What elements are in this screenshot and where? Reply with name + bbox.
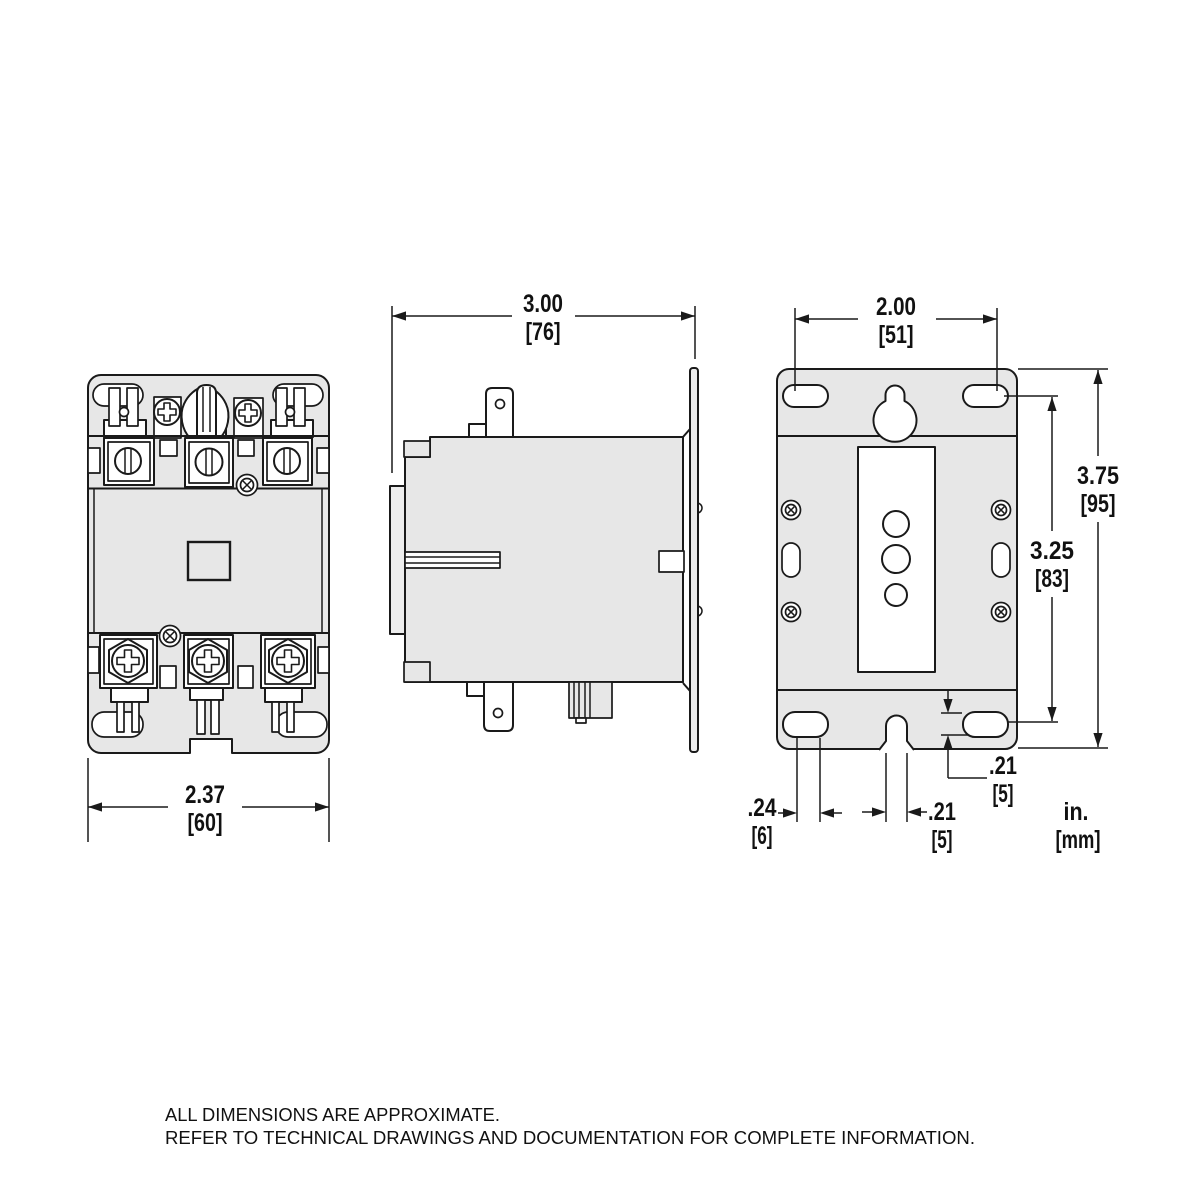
rivet-screw-icon — [782, 501, 801, 520]
dim-label-mm: [6] — [752, 822, 773, 850]
armature-slot — [405, 552, 500, 568]
assembly-screw-icon — [160, 626, 181, 647]
line-terminal-screw — [185, 438, 233, 487]
line-terminal-screw — [104, 438, 154, 485]
dim-label-mm: [60] — [188, 809, 223, 837]
cover-plate-edge — [390, 486, 405, 634]
phillips-screw-icon — [234, 398, 263, 438]
mounting-plate-edge — [690, 368, 698, 752]
hex-terminal-screw — [184, 635, 233, 688]
hex-terminal-screw — [100, 635, 157, 688]
dim-label-mm: [95] — [1081, 490, 1116, 518]
rivet-screw-icon — [782, 603, 801, 622]
terminal-hole-icon — [120, 408, 129, 417]
phillips-screw-icon — [154, 397, 181, 438]
technical-drawing-page: 2.37 [60] 3.00 [76] 2.00 [51] 3.75 [95] — [0, 0, 1200, 1200]
terminal-hole-icon — [494, 709, 503, 718]
mounting-slot — [276, 712, 327, 737]
rivet-screw-icon — [992, 603, 1011, 622]
dim-front-width: 2.37 [60] — [88, 758, 329, 842]
units-legend: in. [mm] — [1056, 798, 1101, 854]
dim-label: .21 — [928, 798, 956, 826]
terminal-hole-icon — [286, 408, 295, 417]
mounting-slot — [783, 712, 828, 737]
units-mm-label: [mm] — [1056, 826, 1101, 854]
dim-label-mm: [5] — [993, 780, 1014, 808]
wiring-hole — [883, 511, 909, 537]
dim-label-mm: [5] — [932, 826, 953, 854]
blade-terminal-assembly — [569, 682, 612, 723]
dim-label: 3.75 — [1077, 462, 1119, 490]
dim-label: 3.00 — [523, 290, 563, 318]
side-slot — [782, 543, 800, 577]
spade-terminal — [467, 682, 513, 731]
rear-view — [777, 369, 1017, 753]
dim-label: .21 — [989, 752, 1017, 780]
units-inches-label: in. — [1064, 798, 1089, 826]
mounting-slot — [963, 385, 1008, 407]
footer-line-2: REFER TO TECHNICAL DRAWINGS AND DOCUMENT… — [165, 1128, 975, 1148]
dim-slot-width: .24 [6] — [748, 738, 843, 850]
wiring-hole — [882, 545, 910, 573]
footer-line-1: ALL DIMENSIONS ARE APPROXIMATE. — [165, 1105, 500, 1125]
dim-label: 3.25 — [1030, 537, 1074, 565]
side-view — [390, 368, 702, 752]
front-view — [88, 375, 329, 753]
footer-note: ALL DIMENSIONS ARE APPROXIMATE. REFER TO… — [165, 1105, 975, 1148]
dim-label: 2.00 — [876, 293, 916, 321]
dim-label: 2.37 — [185, 781, 225, 809]
wiring-hole — [885, 584, 907, 606]
dim-label-mm: [83] — [1035, 565, 1069, 593]
mounting-slot — [783, 385, 828, 407]
line-terminal-screw — [263, 438, 312, 485]
dim-label-mm: [51] — [879, 321, 914, 349]
hex-terminal-screw — [261, 635, 315, 688]
terminal-hole-icon — [496, 400, 505, 409]
rivet-screw-icon — [992, 501, 1011, 520]
dimension-drawing: 2.37 [60] 3.00 [76] 2.00 [51] 3.75 [95] — [0, 0, 1200, 1200]
side-notch — [659, 551, 684, 572]
dim-label-mm: [76] — [526, 318, 561, 346]
dim-notch-width: .21 [5] — [862, 753, 956, 854]
assembly-screw-icon — [237, 475, 258, 496]
spade-terminal — [469, 388, 513, 437]
mounting-slot — [963, 712, 1008, 737]
side-slot — [992, 543, 1010, 577]
dim-label: .24 — [748, 794, 777, 822]
